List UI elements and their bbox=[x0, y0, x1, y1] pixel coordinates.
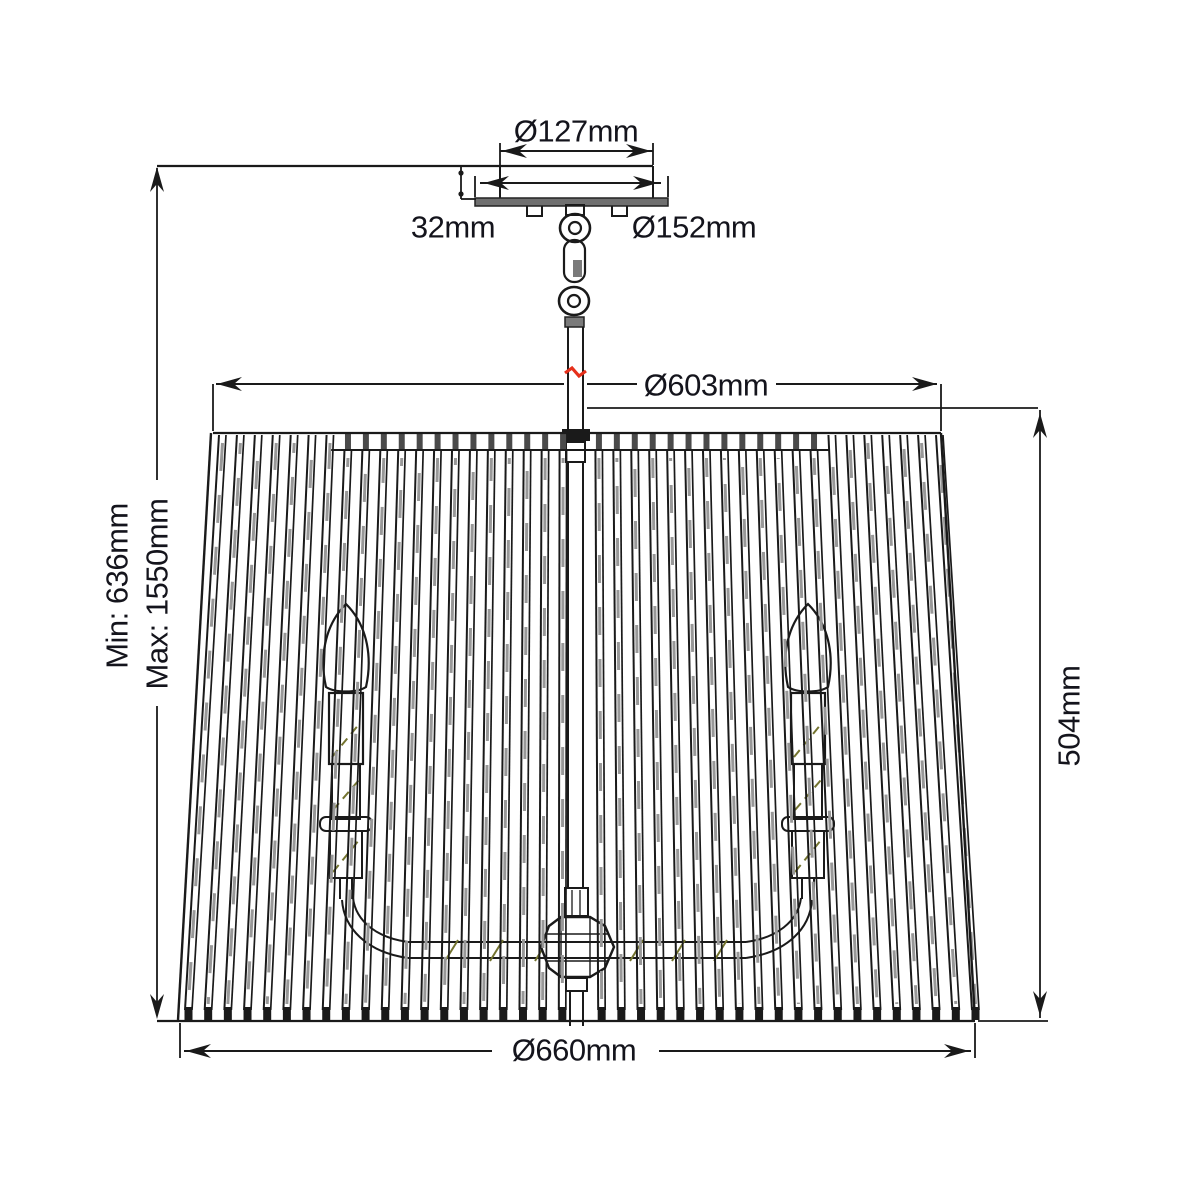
dim-label-shade-top-diameter: Ø603mm bbox=[644, 370, 768, 401]
dim-label-shade-height: 504mm bbox=[1054, 666, 1085, 767]
dim-label-canopy-height: 32mm bbox=[411, 212, 495, 243]
dim-label-canopy-inner-diameter: Ø127mm bbox=[514, 116, 638, 147]
diagram-canvas bbox=[0, 0, 1200, 1200]
dimension-lines bbox=[150, 143, 1048, 1058]
dim-label-canopy-diameter: Ø152mm bbox=[632, 212, 756, 243]
dim-label-drop-min: Min: 636mm bbox=[102, 503, 133, 669]
pendant-light-dimension-diagram: Ø127mm 32mm Ø152mm Ø603mm Min: 636mm Max… bbox=[0, 0, 1200, 1200]
chain-and-stem bbox=[559, 205, 590, 429]
dim-label-shade-bottom-diameter: Ø660mm bbox=[512, 1035, 636, 1066]
dim-label-drop-max: Max: 1550mm bbox=[142, 499, 173, 690]
ceiling-canopy bbox=[157, 166, 668, 216]
